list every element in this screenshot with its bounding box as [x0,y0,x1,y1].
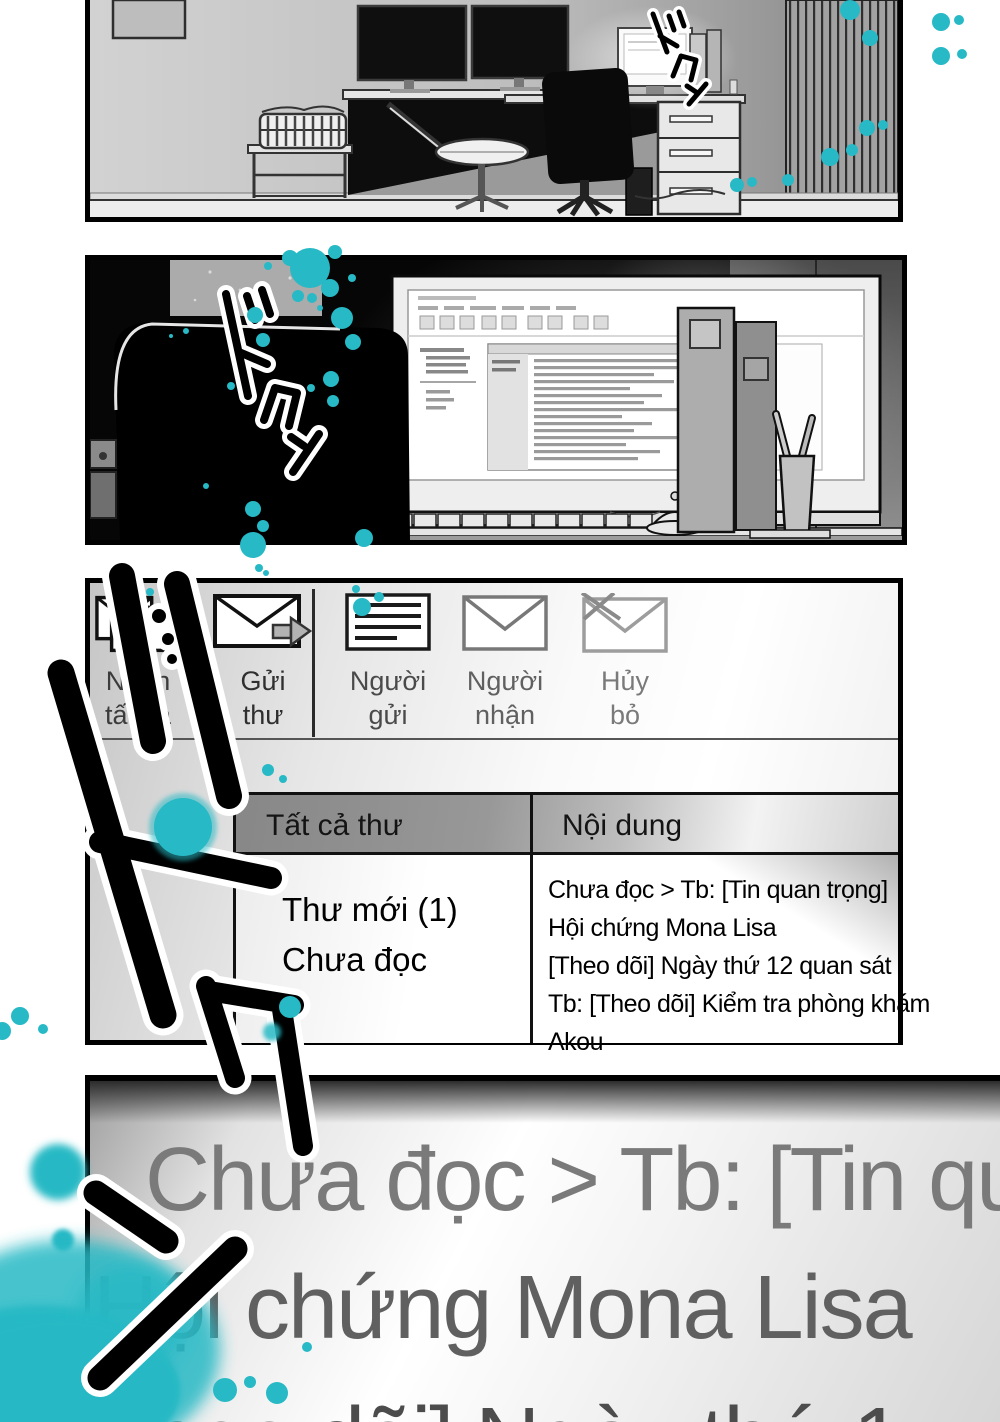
column-header-all-mail[interactable]: Tất cả thư [266,795,403,855]
toolbar-button-cancel[interactable]: Hủy bỏ [578,593,672,732]
keyboard [390,514,652,527]
column-header-content[interactable]: Nội dung [562,795,682,855]
cancel-mail-icon [580,593,670,653]
recipient-mail-icon [462,593,548,653]
content-cell[interactable]: Chưa đọc > Tb: [Tin quan trọng] Hội chứn… [533,855,898,1043]
mail-subject-line: Chưa đọc > Tb: [Tin quan trọng] [533,871,898,909]
folder-new-mail: Thư mới (1) [236,885,530,935]
monitor-dark-1 [358,6,466,80]
panel-shadow [90,1081,1000,1123]
mail-subject-line: Akou [533,1023,898,1061]
manga-page: ドクン [0,0,1000,1422]
mail-subject-line: [Theo dõi] Ngày thứ 12 quan sát [533,947,898,985]
curtain-hatch [786,0,898,212]
notepad [750,530,830,538]
toolbar-bottom-rule [90,738,898,740]
zoom-text-line1: Chưa đọc > Tb: [Tin qu [145,1129,1000,1232]
toolbar-label-recipient: Người [460,664,550,698]
monitor-dark-2 [472,6,568,78]
toolbar-divider [312,589,315,737]
room-scene: ドクン [90,0,898,217]
toolbar-button-recipient[interactable]: Người nhận [460,593,550,732]
panel-room-wide: ドクン [85,0,903,222]
mail-table: Tất cả thư Nội dung Thư mới (1) Chưa đọc… [233,792,898,1040]
receive-mail-icon [94,593,182,653]
folder-unread: Chưa đọc [236,935,530,985]
panel-email-client: Nhận tất cả Gửi thư [85,578,903,1045]
toolbar-button-send[interactable]: Gửi thư [212,593,314,732]
sender-note-icon [345,593,431,653]
toolbar-button-sender[interactable]: Người gửi [342,593,434,732]
send-mail-icon [213,593,313,653]
pc-towers [678,308,776,532]
toolbar-button-receive-all[interactable]: Nhận tất cả [90,593,186,732]
mail-table-header: Tất cả thư Nội dung [236,795,898,855]
toolbar-label-cancel: Hủy [578,664,672,698]
toolbar-label-receive-all: Nhận [90,664,186,698]
toolbar-label-send: Gửi [212,664,314,698]
panel-monitor-dark: ドクン [85,255,907,545]
panel-zoom-text: Chưa đọc > Tb: [Tin qu Hội chứng Mona Li… [85,1075,1000,1422]
dark-room-scene: ドクン [90,260,902,540]
folder-cell[interactable]: Thư mới (1) Chưa đọc [236,855,530,1043]
zoom-text-line2: Hội chứng Mona Lisa [93,1257,911,1360]
zoom-text-line3: heo dõi] Ngày thứ 1 [148,1389,901,1422]
toolbar-label-sender: Người [342,664,434,698]
mail-subject-line: Tb: [Theo dõi] Kiểm tra phòng khám [533,985,898,1023]
mail-subject-line: Hội chứng Mona Lisa [533,909,898,947]
wall-picture [113,0,185,38]
